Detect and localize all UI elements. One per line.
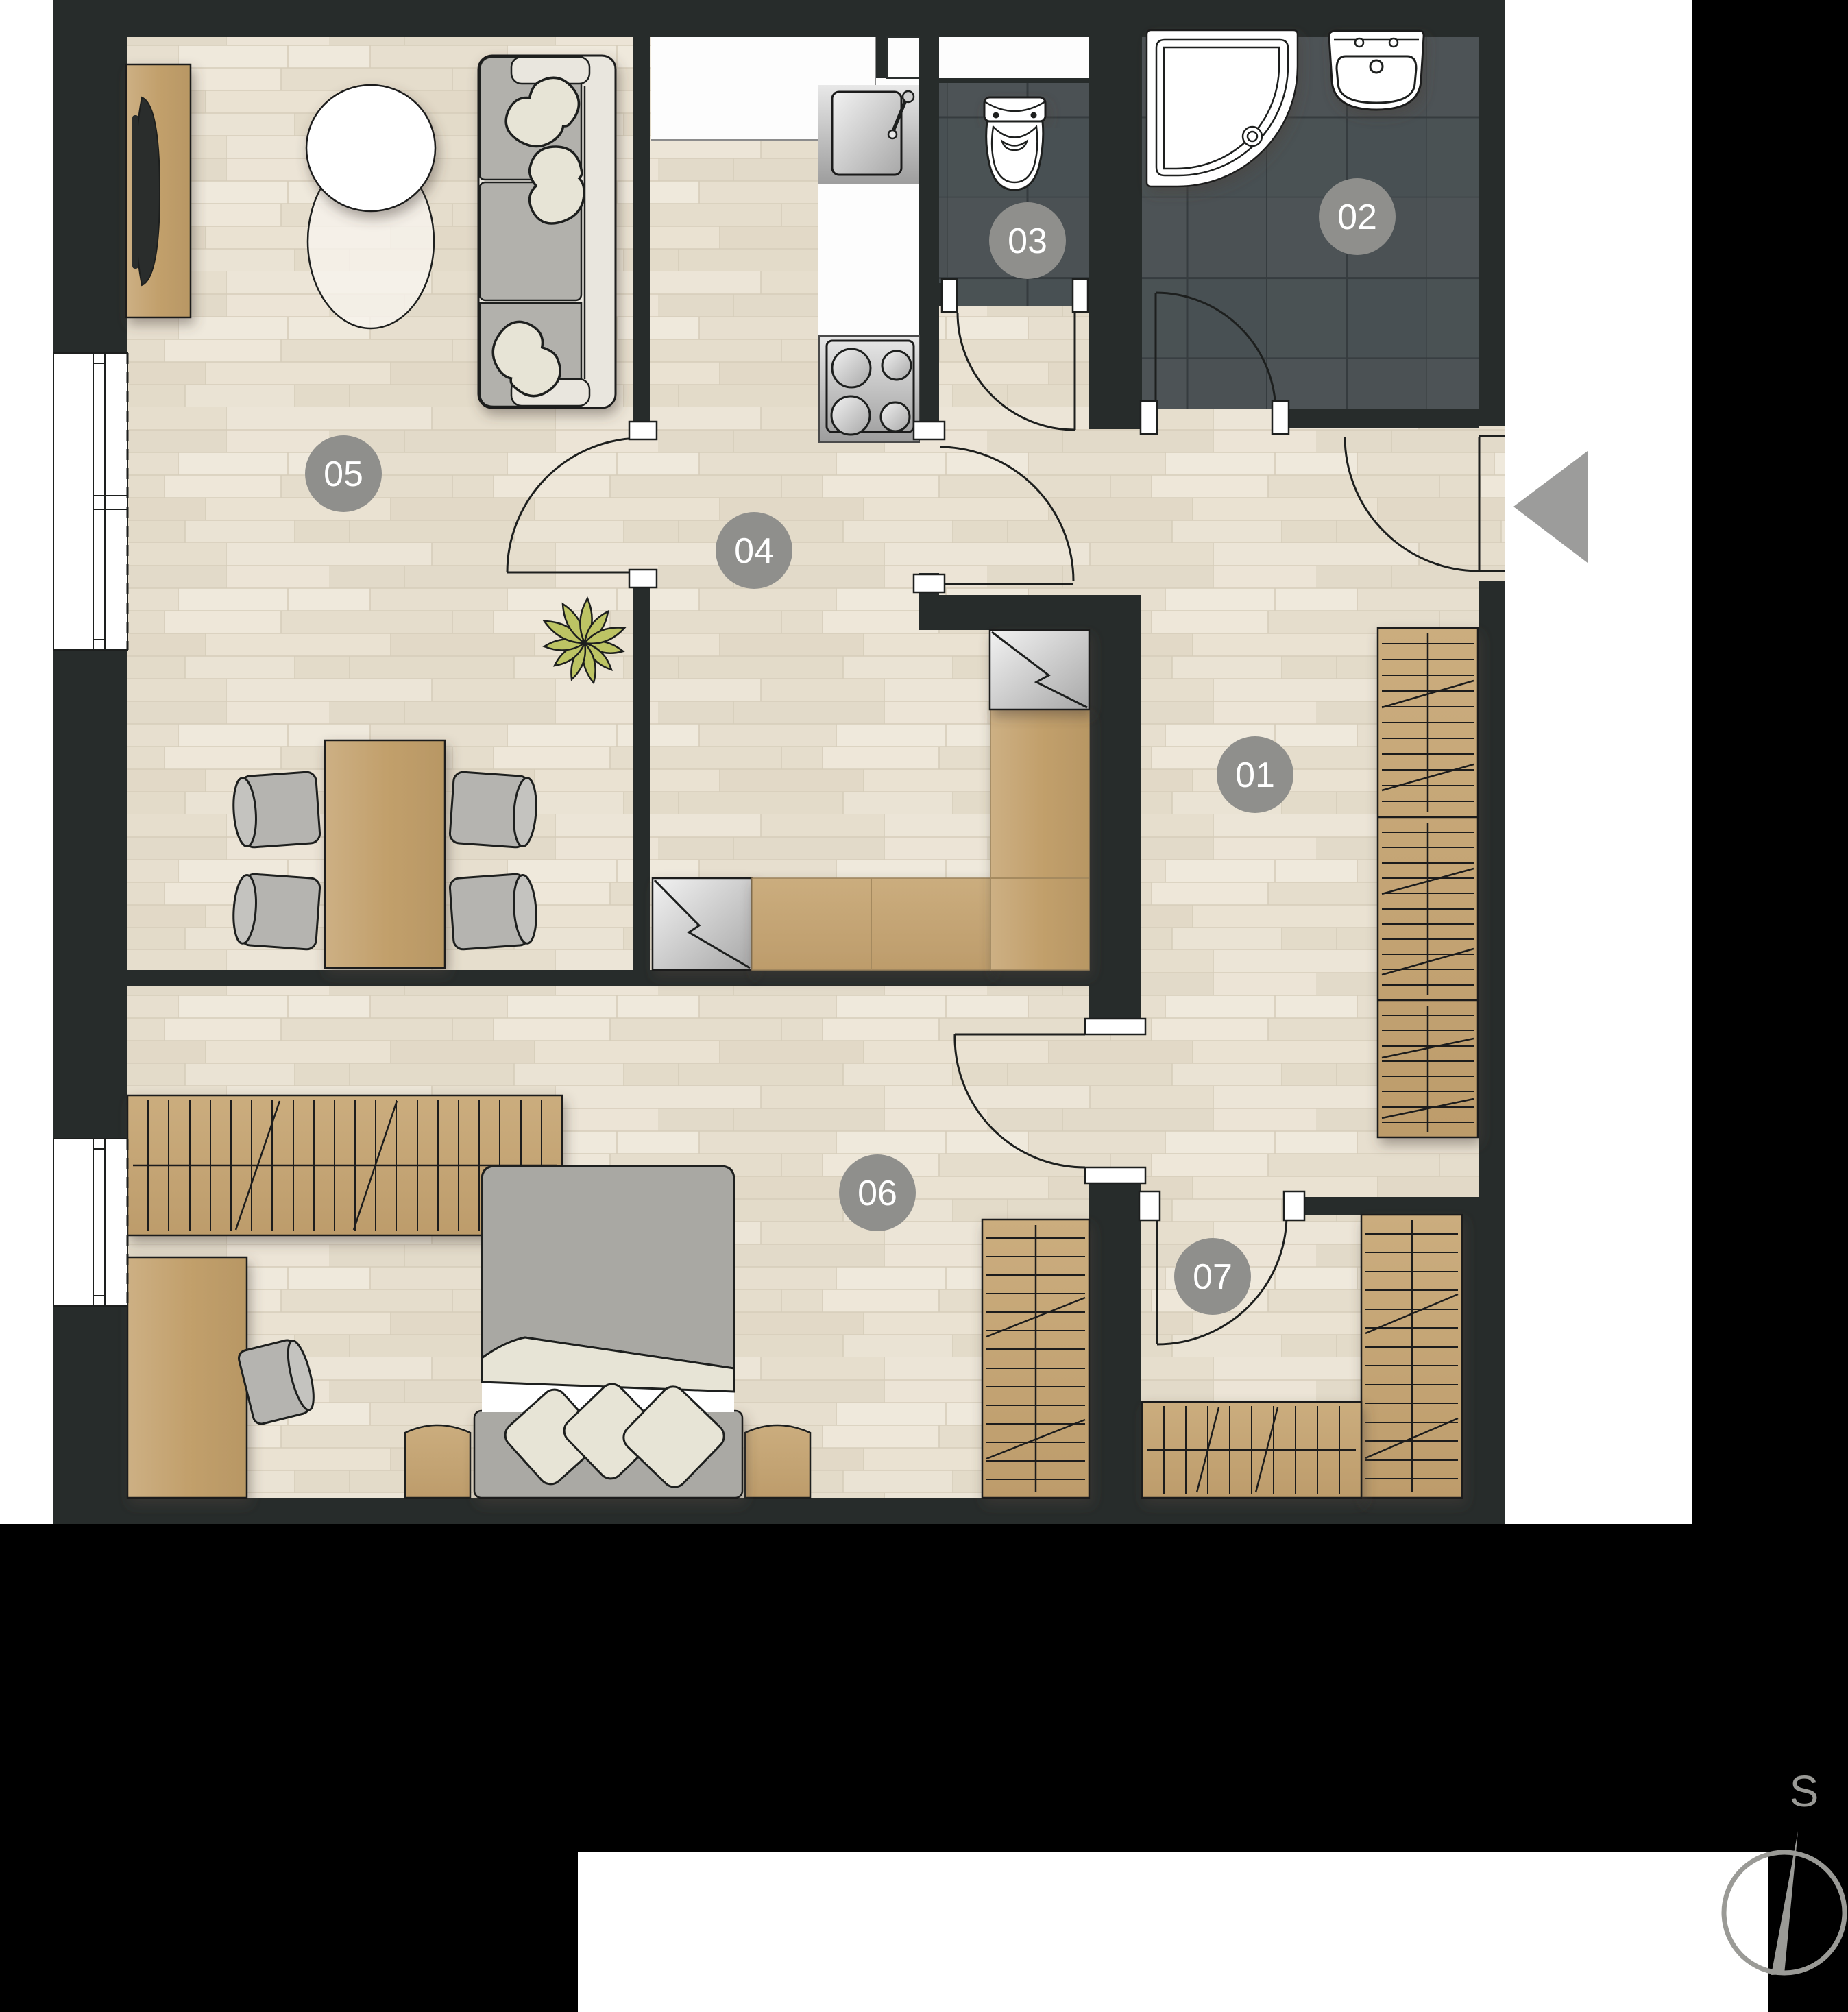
svg-text:S: S <box>1790 1767 1819 1816</box>
svg-text:05: 05 <box>324 454 363 494</box>
svg-text:01: 01 <box>1235 755 1275 795</box>
svg-text:03: 03 <box>1008 221 1047 261</box>
svg-text:06: 06 <box>858 1174 897 1213</box>
svg-text:02: 02 <box>1337 197 1377 237</box>
svg-text:07: 07 <box>1193 1257 1232 1297</box>
svg-text:04: 04 <box>734 531 774 571</box>
